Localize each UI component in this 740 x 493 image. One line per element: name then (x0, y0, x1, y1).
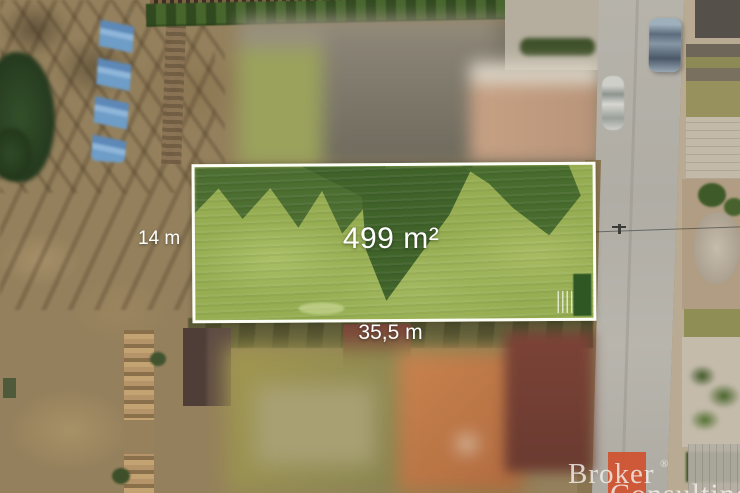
bush (112, 468, 130, 484)
grass-strip (686, 81, 740, 117)
woodpile-gap (124, 420, 154, 454)
bush-cluster (686, 360, 740, 440)
bush-row (520, 38, 595, 56)
hedge (573, 274, 591, 316)
bush (724, 198, 740, 216)
garden-object (3, 378, 16, 398)
watermark: Broker ® Consulting (560, 436, 740, 493)
plot-length-label: 35,5 m (188, 321, 593, 345)
roof-window (458, 437, 476, 451)
woodpile (124, 330, 154, 493)
roof (695, 0, 740, 38)
bush (150, 352, 166, 366)
aerial-photo: 14 m 499 m² 35,5 m Broker ® Consulting (0, 0, 740, 493)
roof-edge (470, 62, 600, 84)
parked-car (649, 18, 682, 73)
grass-strip (686, 57, 740, 68)
picket-fence (557, 291, 572, 313)
plot-area-label: 499 m² (192, 222, 590, 256)
bush (698, 183, 726, 207)
plot-width-label: 14 m (138, 228, 180, 250)
pavement (505, 0, 605, 70)
paved-driveway (686, 117, 740, 179)
lawn-patch (238, 48, 333, 166)
driveway (686, 44, 740, 57)
garden-patch (255, 385, 375, 465)
lawn-patch (684, 309, 740, 337)
registered-trademark-icon: ® (660, 458, 668, 470)
blurred-house (470, 62, 600, 162)
driveway (686, 68, 740, 81)
utility-pole-crossbar (612, 226, 626, 228)
parked-car (602, 76, 624, 130)
watermark-brand-line2: Consulting (610, 480, 740, 493)
